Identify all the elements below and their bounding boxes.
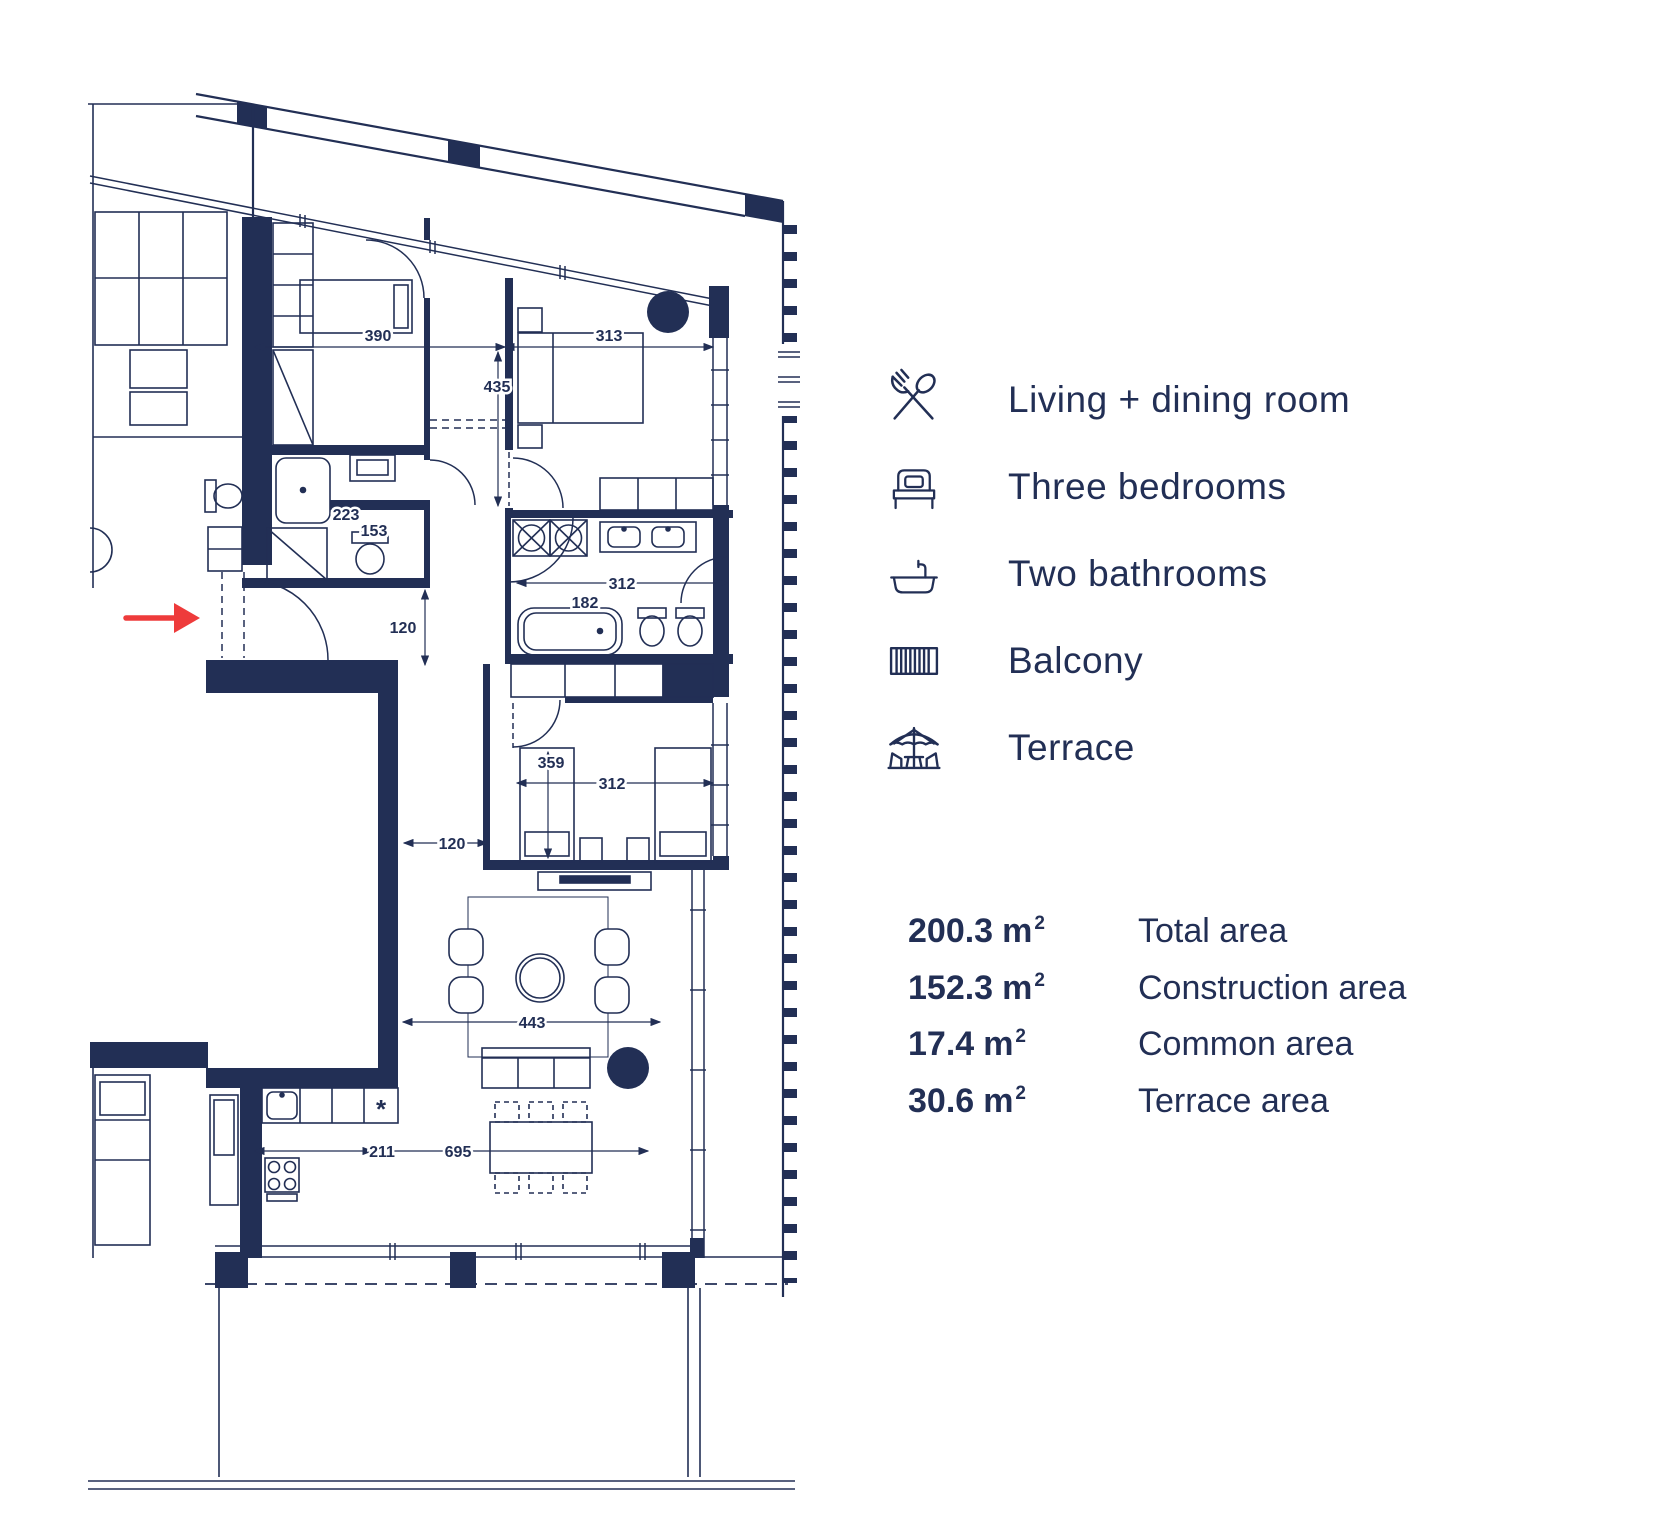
legend-item-bedrooms: Three bedrooms: [878, 443, 1350, 530]
dimension-label: 312: [599, 776, 626, 793]
dimension-label: 120: [390, 620, 417, 637]
dimension-label: 443: [519, 1015, 546, 1032]
column: [607, 1047, 649, 1089]
area-value: 152.3m2: [908, 969, 1138, 1008]
bathroom-1: [267, 455, 395, 580]
legend-label: Three bedrooms: [1008, 466, 1286, 508]
area-row-total: 200.3m2 Total area: [908, 912, 1406, 969]
bed: [300, 280, 412, 333]
bed-icon: [878, 457, 950, 517]
column: [647, 291, 689, 333]
bathtub: [518, 608, 622, 655]
bed: [655, 748, 711, 862]
balcony-railing: [778, 201, 802, 1297]
area-row-terrace: 30.6m2 Terrace area: [908, 1082, 1406, 1139]
dimension-label: 313: [596, 328, 623, 345]
legend-item-bathrooms: Two bathrooms: [878, 530, 1350, 617]
area-table: 200.3m2 Total area 152.3m2 Construction …: [908, 912, 1406, 1138]
entrance-door: [248, 580, 328, 660]
area-row-construction: 152.3m2 Construction area: [908, 969, 1406, 1026]
terrace-rails: [88, 1288, 795, 1489]
legend-label: Two bathrooms: [1008, 553, 1267, 595]
balcony-icon: [878, 639, 950, 683]
dimension-label: 435: [484, 379, 511, 396]
chair: [449, 977, 483, 1013]
dimension-label: 211: [369, 1144, 395, 1161]
bathtub-icon: [878, 546, 950, 602]
area-row-common: 17.4m2 Common area: [908, 1025, 1406, 1082]
area-label: Total area: [1138, 912, 1287, 951]
dining-table: [490, 1122, 592, 1173]
cutlery-icon: [878, 365, 950, 435]
sofa: [482, 1048, 590, 1088]
area-value: 17.4m2: [908, 1025, 1138, 1064]
area-label: Terrace area: [1138, 1082, 1329, 1121]
chair: [449, 929, 483, 965]
dimension-label: 182: [572, 595, 599, 612]
chair: [595, 977, 629, 1013]
legend-label: Balcony: [1008, 640, 1143, 682]
dimension-label: 695: [445, 1144, 472, 1161]
round-table: [516, 954, 564, 1002]
dimension-label: 120: [439, 836, 466, 853]
legend-item-terrace: Terrace: [878, 704, 1350, 791]
area-value: 200.3m2: [908, 912, 1138, 951]
area-value: 30.6m2: [908, 1082, 1138, 1121]
area-label: Construction area: [1138, 969, 1406, 1008]
dimension-label: 223: [333, 507, 360, 524]
dimension-label: 390: [365, 328, 392, 345]
floor-plan: *: [0, 0, 820, 1530]
dimension-label: 359: [538, 755, 565, 772]
page: *: [0, 0, 1654, 1530]
dimension-label: 153: [361, 523, 388, 540]
entrance-arrow-icon: [126, 603, 200, 633]
washing-machines: [513, 520, 587, 556]
living-dining-room: [449, 897, 629, 1193]
legend-item-living-dining: Living + dining room: [878, 356, 1350, 443]
area-label: Common area: [1138, 1025, 1353, 1064]
chair: [595, 929, 629, 965]
terrace-icon: [878, 719, 950, 777]
dimension-label: 312: [609, 576, 636, 593]
legend: Living + dining room Three bedrooms: [878, 356, 1350, 791]
legend-item-balcony: Balcony: [878, 617, 1350, 704]
legend-label: Living + dining room: [1008, 379, 1350, 421]
fixture-symbol: *: [376, 1094, 387, 1124]
legend-label: Terrace: [1008, 727, 1135, 769]
